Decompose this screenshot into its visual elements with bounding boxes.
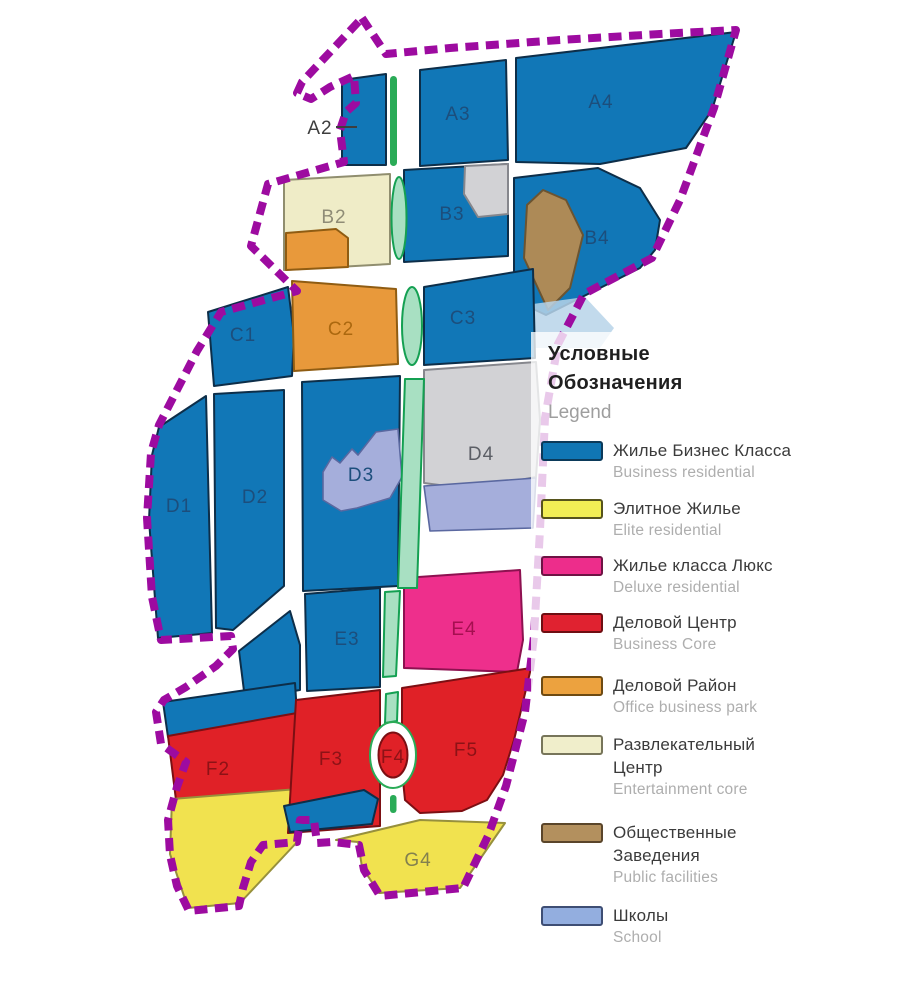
legend-title-en: Legend bbox=[548, 400, 878, 426]
legend-swatch-entertainment-core bbox=[541, 735, 603, 755]
legend-label-ru: Деловой Район bbox=[613, 674, 908, 697]
legend-swatch-office-business-park bbox=[541, 676, 603, 696]
legend-label-en: Deluxe residential bbox=[613, 577, 908, 598]
legend-label-ru: Элитное Жилье bbox=[613, 497, 908, 520]
legend-label-ru: Развлекательный bbox=[613, 733, 908, 756]
legend-label-ru2: Заведения bbox=[613, 844, 908, 867]
legend-swatch-public-facilities bbox=[541, 823, 603, 843]
legend-item-labels: Деловой Район Office business park bbox=[613, 674, 908, 718]
legend-item-labels: Школы School bbox=[613, 904, 908, 948]
legend-label-en: Entertainment core bbox=[613, 779, 908, 800]
legend-item-labels: Элитное Жилье Elite residential bbox=[613, 497, 908, 541]
legend-label-en: Business Core bbox=[613, 634, 908, 655]
legend-label-en: Public facilities bbox=[613, 867, 908, 888]
legend-item-labels: Жилье Бизнес Класса Business residential bbox=[613, 439, 908, 483]
legend: Условные Обозначения Legend Жилье Бизнес… bbox=[0, 0, 918, 1000]
masterplan-page: A2 A3 A4 B2 B3 B4 C1 C2 C3 D1 D2 D3 D4 E… bbox=[0, 0, 918, 1000]
legend-label-ru: Жилье Бизнес Класса bbox=[613, 439, 908, 462]
legend-swatch-deluxe-residential bbox=[541, 556, 603, 576]
legend-item-labels: Жилье класса Люкс Deluxe residential bbox=[613, 554, 908, 598]
legend-label-ru: Деловой Центр bbox=[613, 611, 908, 634]
legend-title-ru-line1: Условные bbox=[548, 340, 878, 369]
legend-label-en: Elite residential bbox=[613, 520, 908, 541]
legend-title-ru-line2: Обозначения bbox=[548, 369, 878, 398]
legend-title: Условные Обозначения Legend bbox=[548, 340, 878, 426]
legend-item-labels: Общественные Заведения Public facilities bbox=[613, 821, 908, 888]
legend-swatch-business-residential bbox=[541, 441, 603, 461]
legend-label-en: Office business park bbox=[613, 697, 908, 718]
legend-label-en: School bbox=[613, 927, 908, 948]
legend-label-ru: Школы bbox=[613, 904, 908, 927]
legend-label-ru: Общественные bbox=[613, 821, 908, 844]
legend-item-labels: Развлекательный Центр Entertainment core bbox=[613, 733, 908, 800]
legend-item-labels: Деловой Центр Business Core bbox=[613, 611, 908, 655]
legend-label-en: Business residential bbox=[613, 462, 908, 483]
legend-swatch-elite-residential bbox=[541, 499, 603, 519]
legend-swatch-school bbox=[541, 906, 603, 926]
legend-swatch-business-core bbox=[541, 613, 603, 633]
legend-label-ru: Жилье класса Люкс bbox=[613, 554, 908, 577]
legend-label-ru2: Центр bbox=[613, 756, 908, 779]
